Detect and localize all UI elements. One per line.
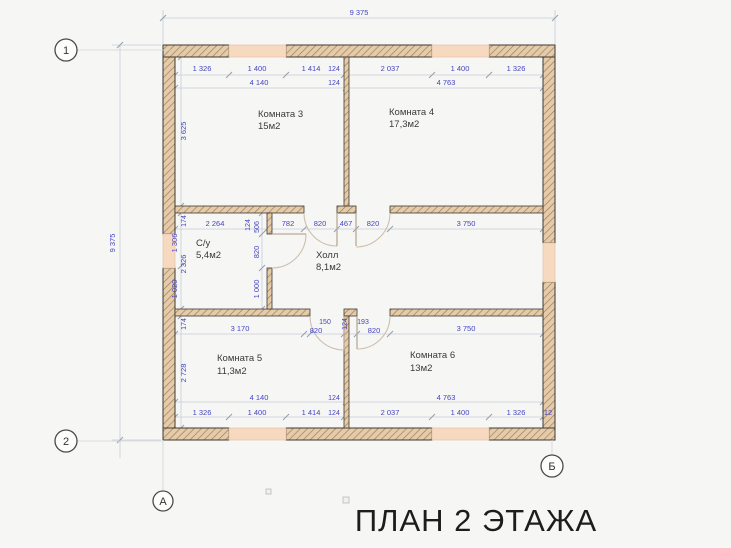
dim-label: 1 400: [451, 64, 470, 73]
dim-label: 124: [328, 410, 340, 417]
dim-label: 193: [357, 319, 369, 326]
room6-name: Комната 6: [410, 350, 455, 361]
window-room6: [432, 428, 489, 440]
door-arc-room3: [304, 213, 337, 246]
windows: [163, 45, 555, 440]
dim-label: 820: [310, 326, 323, 335]
room5-area: 11,3м2: [217, 366, 247, 377]
dim-label: 4 140: [250, 78, 269, 87]
dim-label: 3 625: [179, 122, 188, 141]
dim-label: 4 763: [437, 78, 456, 87]
dim-label: 1 414: [302, 408, 321, 417]
dim-col-wc-wall: 506 820 1 000: [252, 221, 261, 298]
dim-label: 1 326: [193, 408, 212, 417]
dim-label: 1 326: [507, 408, 526, 417]
dim-label: 467: [340, 219, 353, 228]
dim-label: 2 326: [179, 255, 188, 274]
hall-area: 8,1м2: [316, 262, 341, 273]
dim-overall-top: 9 375: [350, 8, 369, 17]
dim-overall-left: 9 375: [108, 234, 117, 253]
dim-label: 4 140: [250, 393, 269, 402]
room-labels: Комната 3 15м2 Комната 4 17,3м2 С/у 5,4м…: [196, 107, 455, 377]
dim-label: 1 020: [170, 280, 179, 299]
hall-name: Холл: [316, 250, 338, 261]
dim-label: 12: [544, 408, 552, 417]
dim-label: 782: [282, 219, 295, 228]
dim-row-bottom-2: 1 326 1 400 1 414 124 2 037 1 400 1 326 …: [193, 408, 553, 417]
room3-area: 15м2: [258, 121, 280, 132]
axis-label-A: А: [159, 496, 167, 508]
wc-name: С/у: [196, 238, 211, 249]
door-arc-wc: [272, 234, 306, 268]
room6-area: 13м2: [410, 363, 432, 374]
floor-plan-page: 9 375 9 375 1 326 1 400 1 414 124 2 037 …: [0, 0, 731, 548]
dim-label: 124: [328, 80, 340, 87]
dim-label: 1 326: [193, 64, 212, 73]
dim-row-mid-bottom: 3 170 150 820 124 193 820 3 750: [231, 318, 476, 335]
dim-label: 124: [328, 66, 340, 73]
room3-name: Комната 3: [258, 109, 303, 120]
room4-name: Комната 4: [389, 107, 434, 118]
window-room3: [229, 45, 286, 57]
dim-label: 2 037: [381, 64, 400, 73]
dim-label: 124: [328, 395, 340, 402]
dim-label: 1 400: [248, 408, 267, 417]
axis-label-2: 2: [63, 436, 69, 448]
room5-name: Комната 5: [217, 353, 262, 364]
dim-label: 820: [367, 219, 380, 228]
page-title: ПЛАН 2 ЭТАЖА: [355, 503, 597, 538]
window-room4: [432, 45, 489, 57]
dim-label: 820: [252, 246, 261, 259]
dim-row-top-1: 1 326 1 400 1 414 124 2 037 1 400 1 326: [193, 64, 526, 73]
dim-label: 1 400: [248, 64, 267, 73]
outer-walls: [163, 45, 555, 440]
dim-label: 4 763: [437, 393, 456, 402]
dim-label: 3 750: [457, 219, 476, 228]
dim-label: 506: [254, 221, 261, 233]
dim-label: 174: [181, 215, 188, 227]
dim-label: 3 170: [231, 324, 250, 333]
window-hall: [543, 243, 555, 282]
dim-label: 124: [245, 219, 252, 231]
room4-area: 17,3м2: [389, 119, 419, 130]
dim-label: 1 326: [507, 64, 526, 73]
dim-label: 2 037: [381, 408, 400, 417]
dim-row-bottom-1: 4 140 124 4 763: [250, 393, 456, 402]
wc-area: 5,4м2: [196, 250, 221, 261]
dim-label: 820: [368, 326, 381, 335]
dim-row-top-2: 4 140 124 4 763: [250, 78, 456, 87]
dim-label: 150: [319, 319, 331, 326]
dim-label: 2 264: [206, 219, 225, 228]
dim-label: 1 414: [302, 64, 321, 73]
floor-plan-drawing: 9 375 9 375 1 326 1 400 1 414 124 2 037 …: [0, 0, 731, 548]
dim-label: 174: [181, 318, 188, 330]
axis-label-1: 1: [63, 45, 69, 57]
dim-label: 1 000: [252, 280, 261, 299]
small-markers: [266, 489, 349, 503]
dim-label: 820: [314, 219, 327, 228]
window-room5: [229, 428, 286, 440]
dim-label: 2 728: [179, 364, 188, 383]
dim-label: 124: [342, 318, 349, 330]
axis-label-B: Б: [548, 461, 555, 473]
dim-label: 1 400: [451, 408, 470, 417]
dim-label: 1 306: [170, 234, 179, 253]
dim-label: 3 750: [457, 324, 476, 333]
